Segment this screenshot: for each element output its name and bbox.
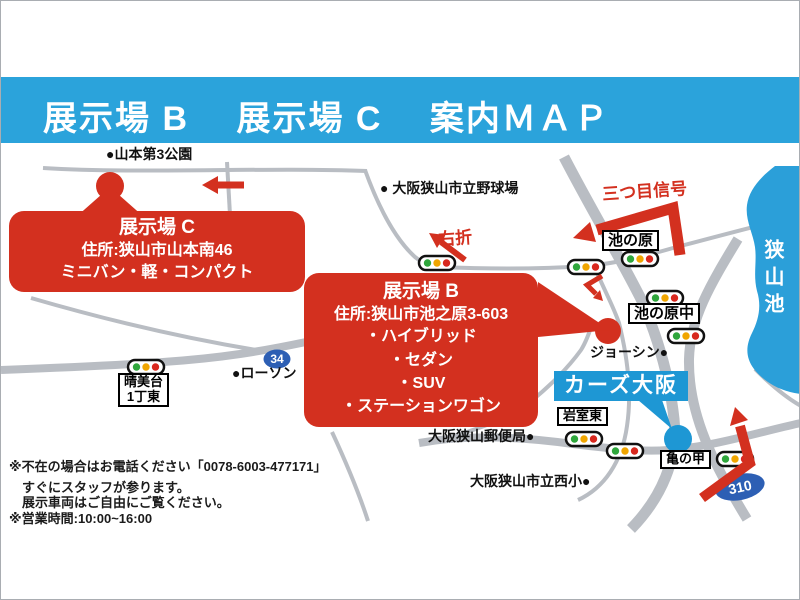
- site-b-title: 展示場 B: [304, 280, 538, 305]
- site-b-callout-pointer: [538, 282, 610, 337]
- site-b-vehicle-3: ・ステーションワゴン: [304, 395, 538, 418]
- label-yamamoto-park: ●山本第3公園: [106, 147, 192, 162]
- traffic-light-icon: [668, 329, 704, 343]
- route310-arrow-head: [730, 407, 748, 426]
- label-nishi-elementary: 大阪狭山市立西小●: [470, 474, 590, 489]
- callout-site-b: 展示場 B 住所:狭山市池之原3-603 ・ハイブリッド ・セダン ・SUV ・…: [304, 273, 538, 427]
- sign-harumidai-line2: 1丁東: [124, 390, 163, 405]
- third-signal-arrow-head: [573, 222, 596, 242]
- sign-harumidai: 晴美台 1丁東: [118, 373, 169, 407]
- road: [43, 168, 367, 171]
- road: [332, 432, 368, 521]
- road: [31, 298, 275, 353]
- site-b-vehicle-2: ・SUV: [304, 372, 538, 395]
- traffic-light-icon: [568, 260, 604, 274]
- site-b-address: 住所:狭山市池之原3-603: [304, 305, 538, 326]
- map-flyer: 34 310: [0, 0, 800, 600]
- dealer-location-marker: [664, 425, 692, 453]
- note-hours: ※営業時間:10:00~16:00: [9, 508, 152, 527]
- label-lake: 狭山池: [758, 239, 787, 320]
- label-right-turn: 右折: [437, 223, 473, 250]
- site-c-vehicles: ミニバン・軽・コンパクト: [9, 261, 305, 284]
- traffic-light-icon: [622, 252, 658, 266]
- sign-kamenoko: 亀の甲: [660, 450, 711, 469]
- page-title: 展示場 B 展示場 C 案内ＭＡＰ: [43, 91, 610, 140]
- sign-ikenohara-naka: 池の原中: [628, 303, 700, 324]
- traffic-light-icon: [128, 360, 164, 374]
- note-phone: ※不在の場合はお電話ください「0078-6003-477171」: [9, 456, 327, 475]
- dealer-name-box: カーズ大阪: [554, 371, 688, 401]
- label-post-office: 大阪狭山郵便局●: [428, 429, 534, 444]
- traffic-light-icon: [566, 432, 602, 446]
- site-b-vehicle-1: ・セダン: [304, 349, 538, 372]
- label-joshin: ジョーシン●: [590, 345, 668, 360]
- sign-iwamuro-higashi: 岩室東: [557, 407, 608, 426]
- traffic-light-icon: [419, 256, 455, 270]
- traffic-light-icon: [607, 444, 643, 458]
- sign-ikenohara: 池の原: [602, 230, 659, 251]
- callout-site-c: 展示場 C 住所:狭山市山本南46 ミニバン・軽・コンパクト: [9, 211, 305, 292]
- site-c-address: 住所:狭山市山本南46: [9, 241, 305, 262]
- arrow-west-head: [202, 176, 218, 194]
- label-baseball-field: ● 大阪狭山市立野球場: [380, 181, 518, 196]
- sign-harumidai-line1: 晴美台: [124, 375, 163, 390]
- site-c-title: 展示場 C: [9, 216, 305, 241]
- site-b-vehicle-0: ・ハイブリッド: [304, 325, 538, 348]
- label-lawson: ●ローソン: [232, 366, 296, 381]
- route-badge-34-label: 34: [270, 352, 284, 366]
